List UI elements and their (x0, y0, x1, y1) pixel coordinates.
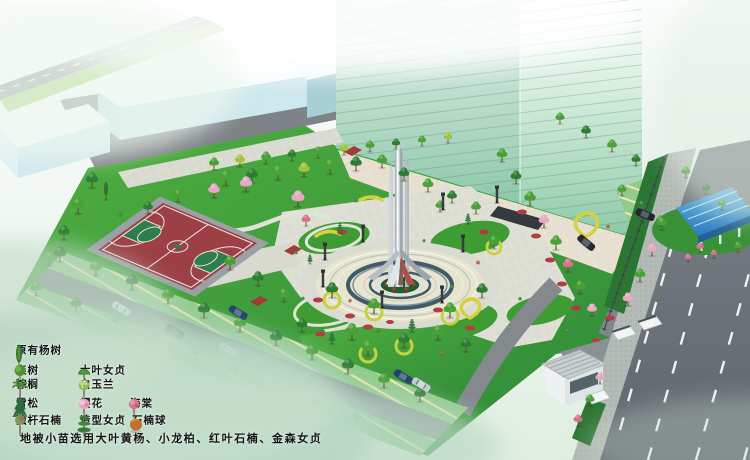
landscape-plan-rendering: 原有杨树 栾树 大叶女贞 棕榈 白玉兰 雪松 樱花 海棠 独杆石楠 造型女贞 石… (0, 0, 750, 460)
site-plan-scene (0, 0, 750, 460)
